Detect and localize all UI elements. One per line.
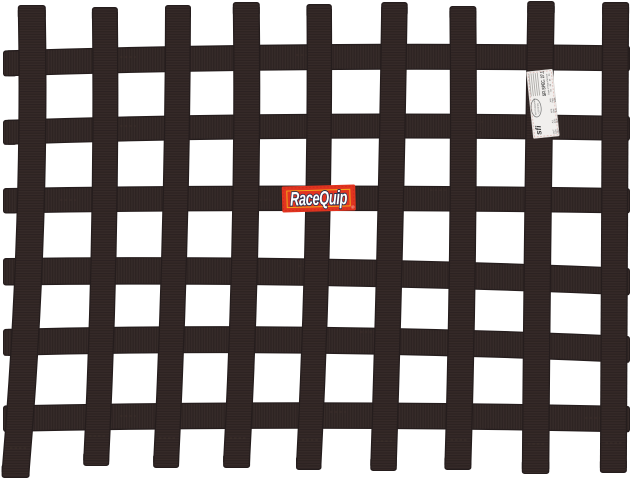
svg-text:RaceQuip: RaceQuip xyxy=(290,187,348,211)
svg-text:MAR: MAR xyxy=(553,97,557,102)
svg-text:sfi: sfi xyxy=(534,124,544,135)
